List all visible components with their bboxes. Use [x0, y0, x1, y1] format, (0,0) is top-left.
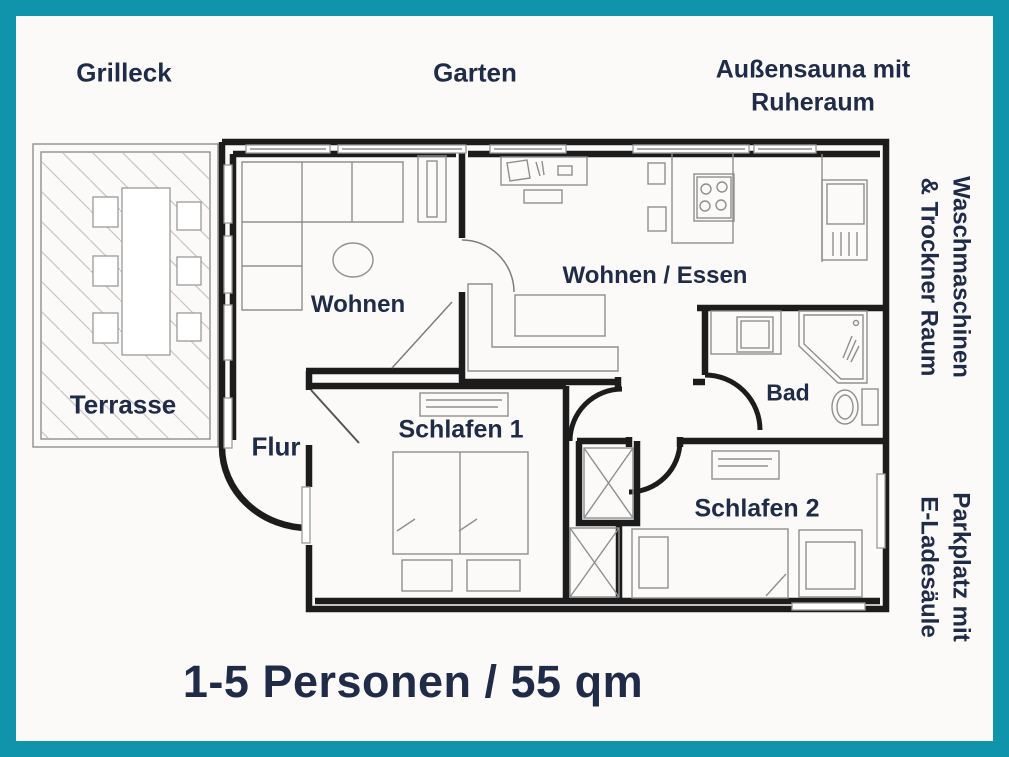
kitchen-island: [672, 153, 733, 243]
sink: [737, 317, 773, 352]
bad-fixtures: [711, 311, 878, 425]
flur-window: [302, 487, 310, 543]
room-label-wohnen-essen: Wohnen / Essen: [563, 262, 748, 290]
pillow: [639, 537, 668, 588]
label-parkplatz: Parkplatz mit E-Ladesäule: [913, 492, 976, 641]
stool-2: [648, 207, 666, 231]
wall-hall-bottom-left: [577, 437, 629, 447]
door-hall-essen: [570, 389, 622, 441]
label-waschraum-line1: Waschmaschinen: [945, 176, 977, 378]
windows: [224, 145, 885, 610]
nightstand-1: [402, 560, 452, 591]
wohnen-furniture: [242, 156, 446, 310]
desk-pad: [507, 160, 530, 181]
radiator-1: [420, 393, 508, 416]
apartment-walls: [222, 142, 886, 609]
room-label-flur: Flur: [251, 432, 300, 463]
pen-icon: [536, 161, 544, 176]
label-garten: Garten: [433, 58, 517, 89]
label-waschraum: Waschmaschinen & Trockner Raum: [913, 176, 976, 378]
label-aussensauna-line2: Ruheraum: [716, 86, 910, 119]
floorplan-page: Grilleck Garten Außensauna mit Ruheraum …: [0, 0, 1009, 757]
label-grilleck: Grilleck: [76, 58, 171, 89]
nightstand-2: [467, 560, 520, 591]
wardrobe-2: [570, 528, 619, 597]
label-aussensauna-line1: Außensauna mit: [716, 54, 910, 87]
wall-bad-west: [693, 308, 705, 382]
terrace-table: [122, 188, 170, 355]
door-bad: [705, 375, 760, 430]
wall-schlafen2-top: [680, 437, 886, 447]
label-aussensauna: Außensauna mit Ruheraum: [716, 54, 910, 119]
room-label-schlafen1: Schlafen 1: [398, 416, 523, 445]
label-parkplatz-line1: Parkplatz mit: [945, 492, 977, 641]
room-label-bad: Bad: [766, 380, 809, 407]
dining-table: [515, 295, 605, 336]
door-schlafen1-leaf: [311, 390, 359, 443]
stove-burners: [700, 182, 727, 211]
toilet-tank: [862, 389, 878, 425]
showerhead-icon: [854, 321, 859, 326]
fridge: [822, 180, 867, 260]
stove: [694, 174, 734, 221]
dining-bench: [468, 284, 618, 371]
round-side-table: [333, 243, 373, 277]
corner-sofa: [242, 162, 403, 310]
room-label-wohnen: Wohnen: [311, 291, 405, 319]
room-label-schlafen2: Schlafen 2: [694, 495, 819, 524]
label-waschraum-line2: & Trockner Raum: [913, 176, 945, 378]
bed-2: [799, 530, 862, 597]
label-parkplatz-line2: E-Ladesäule: [913, 492, 945, 641]
stool-1: [648, 163, 665, 184]
cabinet: [418, 156, 446, 222]
shelf: [524, 190, 562, 203]
radiator-2: [712, 451, 779, 479]
caption-occupancy-size: 1-5 Personen / 55 qm: [183, 656, 643, 708]
wardrobe-1: [584, 448, 633, 518]
room-label-terrasse: Terrasse: [70, 390, 177, 421]
